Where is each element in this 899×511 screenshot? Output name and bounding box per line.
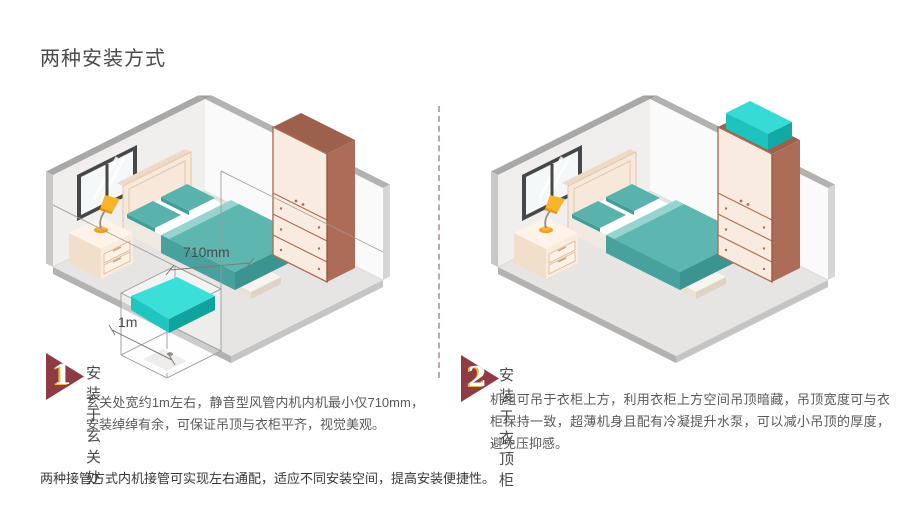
dimension-1m-label: 1m xyxy=(118,314,137,330)
room-illustration-wardrobe-install xyxy=(465,85,865,385)
product-detail-page: 两种安装方式 xyxy=(0,0,899,511)
room-illustration-entrance-install: 710mm 1m xyxy=(20,85,420,385)
page-title: 两种安装方式 xyxy=(40,42,166,71)
dimension-710mm-label: 710mm xyxy=(183,244,230,260)
section-body: 玄关处宽约1m左右，静音型风管内机内机最小仅710mm，安装绰绰有余，可保证吊顶… xyxy=(86,392,424,436)
footer-note: 两种接管方式内机接管可实现左右通配，适应不同安装空间，提高安装便捷性。 xyxy=(40,468,495,487)
section-divider xyxy=(438,106,440,378)
section-body: 机组可吊于衣柜上方，利用衣柜上方空间吊顶暗藏，吊顶宽度可与衣柜保持一致，超薄机身… xyxy=(490,389,890,455)
